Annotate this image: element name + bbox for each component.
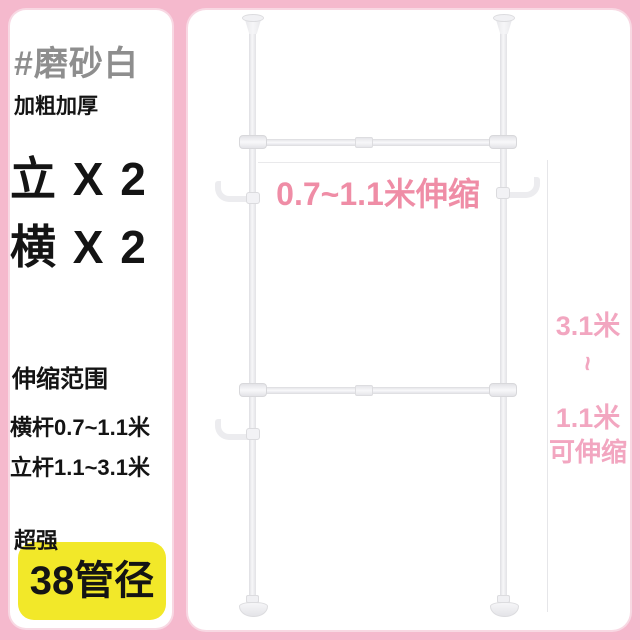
bottom-bar-left-clamp	[239, 383, 267, 397]
left-pole-collar-lower	[246, 428, 260, 440]
left-pole	[249, 28, 256, 604]
height-min-label: 1.1米	[546, 396, 630, 435]
vertical-pole-count: 立 X 2	[10, 143, 148, 209]
horizontal-bar-range: 横杆0.7~1.1米	[10, 410, 150, 442]
top-bar-right-clamp	[489, 135, 517, 149]
bottom-bar-right-clamp	[489, 383, 517, 397]
vertical-pole-range: 立杆1.1~3.1米	[10, 450, 150, 482]
horizontal-bar-count: 横 X 2	[10, 211, 148, 277]
top-bar-left-clamp	[239, 135, 267, 149]
feature-label: 加粗加厚	[14, 90, 98, 120]
bar-range-annotation: 0.7~1.1米伸缩	[260, 169, 496, 215]
range-section-title: 伸缩范围	[12, 359, 108, 394]
bottom-bar-telescope-joint	[355, 385, 373, 396]
variant-tag: #磨砂白	[14, 36, 139, 85]
top-bar-telescope-joint	[355, 137, 373, 148]
photo-edge-horizontal	[258, 162, 500, 163]
height-tilde: ~	[546, 348, 630, 379]
strength-label: 超强	[14, 523, 58, 555]
left-ceiling-cap	[242, 14, 264, 22]
left-pole-collar-upper	[246, 192, 260, 204]
right-pole-collar	[496, 187, 510, 199]
bottom-horizontal-bar	[250, 387, 507, 394]
top-horizontal-bar	[250, 139, 507, 146]
height-max-label: 3.1米	[546, 304, 630, 343]
right-ceiling-cap	[493, 14, 515, 22]
height-suffix-label: 可伸缩	[546, 432, 630, 469]
right-pole	[500, 28, 507, 604]
photo-edge-vertical	[547, 160, 548, 612]
